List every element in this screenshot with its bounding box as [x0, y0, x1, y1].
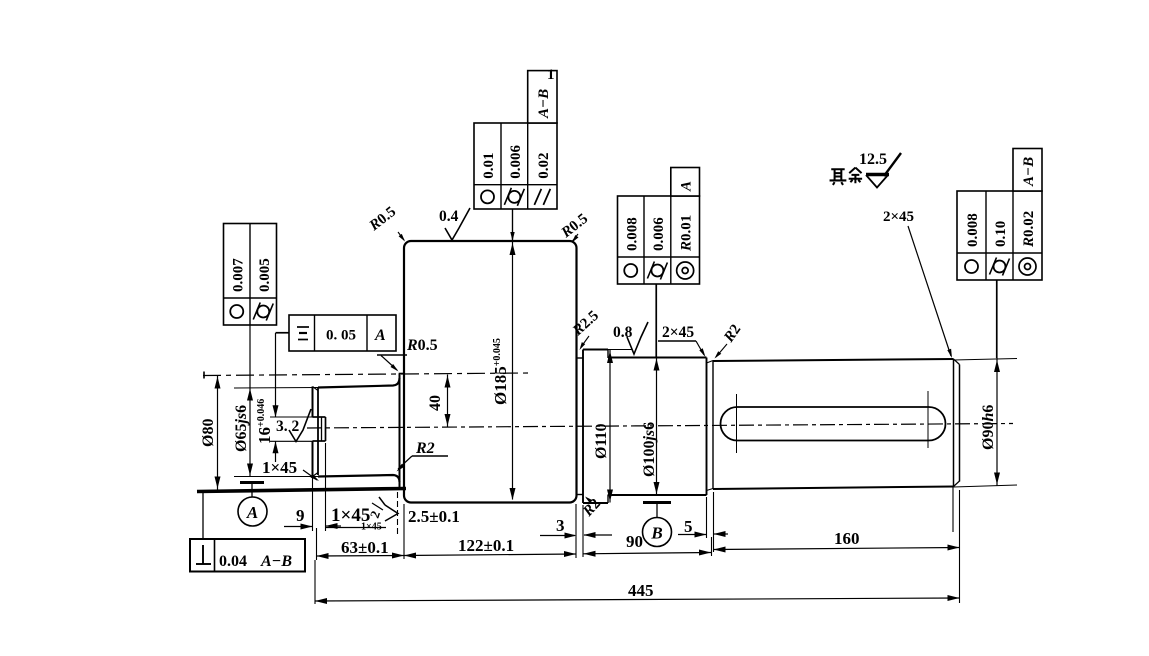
svg-text:A−B: A−B	[260, 553, 292, 570]
svg-text:R0.02: R0.02	[1021, 211, 1037, 248]
svg-text:63±0.1: 63±0.1	[341, 538, 389, 557]
svg-text:0.007: 0.007	[230, 258, 246, 292]
svg-text:A: A	[679, 181, 695, 192]
svg-text:0.8: 0.8	[613, 324, 633, 341]
svg-text:Ø100js6: Ø100js6	[641, 422, 658, 477]
svg-text:A: A	[246, 503, 258, 522]
svg-text:0.006: 0.006	[508, 144, 524, 178]
svg-text:90: 90	[626, 532, 643, 551]
svg-text:A: A	[374, 327, 386, 344]
svg-text:Ø110: Ø110	[593, 423, 610, 459]
svg-text:0.006: 0.006	[651, 217, 667, 251]
svg-text:1×45: 1×45	[361, 522, 382, 533]
svg-text:40: 40	[427, 395, 444, 411]
svg-text:Ø65js6: Ø65js6	[233, 405, 250, 452]
svg-text:1×45: 1×45	[262, 458, 297, 477]
svg-text:0.02: 0.02	[536, 152, 552, 178]
svg-text:0.04: 0.04	[219, 553, 247, 570]
svg-text:9: 9	[296, 506, 305, 525]
svg-text:R0.5: R0.5	[406, 337, 438, 354]
svg-text:3: 3	[556, 516, 565, 535]
svg-text:0.01: 0.01	[481, 152, 497, 178]
svg-text:R0.01: R0.01	[679, 215, 695, 252]
svg-text:160: 160	[834, 529, 860, 548]
svg-text:A−B: A−B	[1021, 157, 1037, 187]
svg-text:122±0.1: 122±0.1	[458, 536, 514, 555]
svg-text:12.5: 12.5	[859, 151, 887, 168]
svg-text:R2: R2	[415, 440, 435, 457]
svg-text:3. 2: 3. 2	[276, 418, 300, 435]
svg-text:2.5±0.1: 2.5±0.1	[408, 507, 460, 526]
svg-text:2×45: 2×45	[662, 324, 694, 341]
svg-text:2×45: 2×45	[883, 209, 914, 225]
svg-text:445: 445	[628, 581, 654, 600]
svg-text:0.4: 0.4	[439, 208, 459, 225]
svg-text:0.005: 0.005	[257, 258, 273, 292]
svg-text:1: 1	[547, 67, 555, 83]
svg-text:0.10: 0.10	[993, 221, 1009, 247]
svg-text:B: B	[650, 524, 662, 543]
svg-text:0.008: 0.008	[965, 213, 981, 247]
svg-text:Ø80: Ø80	[200, 419, 217, 447]
svg-text:0.008: 0.008	[624, 217, 640, 251]
svg-text:0. 05: 0. 05	[326, 328, 356, 344]
svg-text:5: 5	[684, 517, 693, 536]
svg-text:Ø90h6: Ø90h6	[980, 405, 997, 450]
svg-text:A−B: A−B	[536, 89, 552, 119]
